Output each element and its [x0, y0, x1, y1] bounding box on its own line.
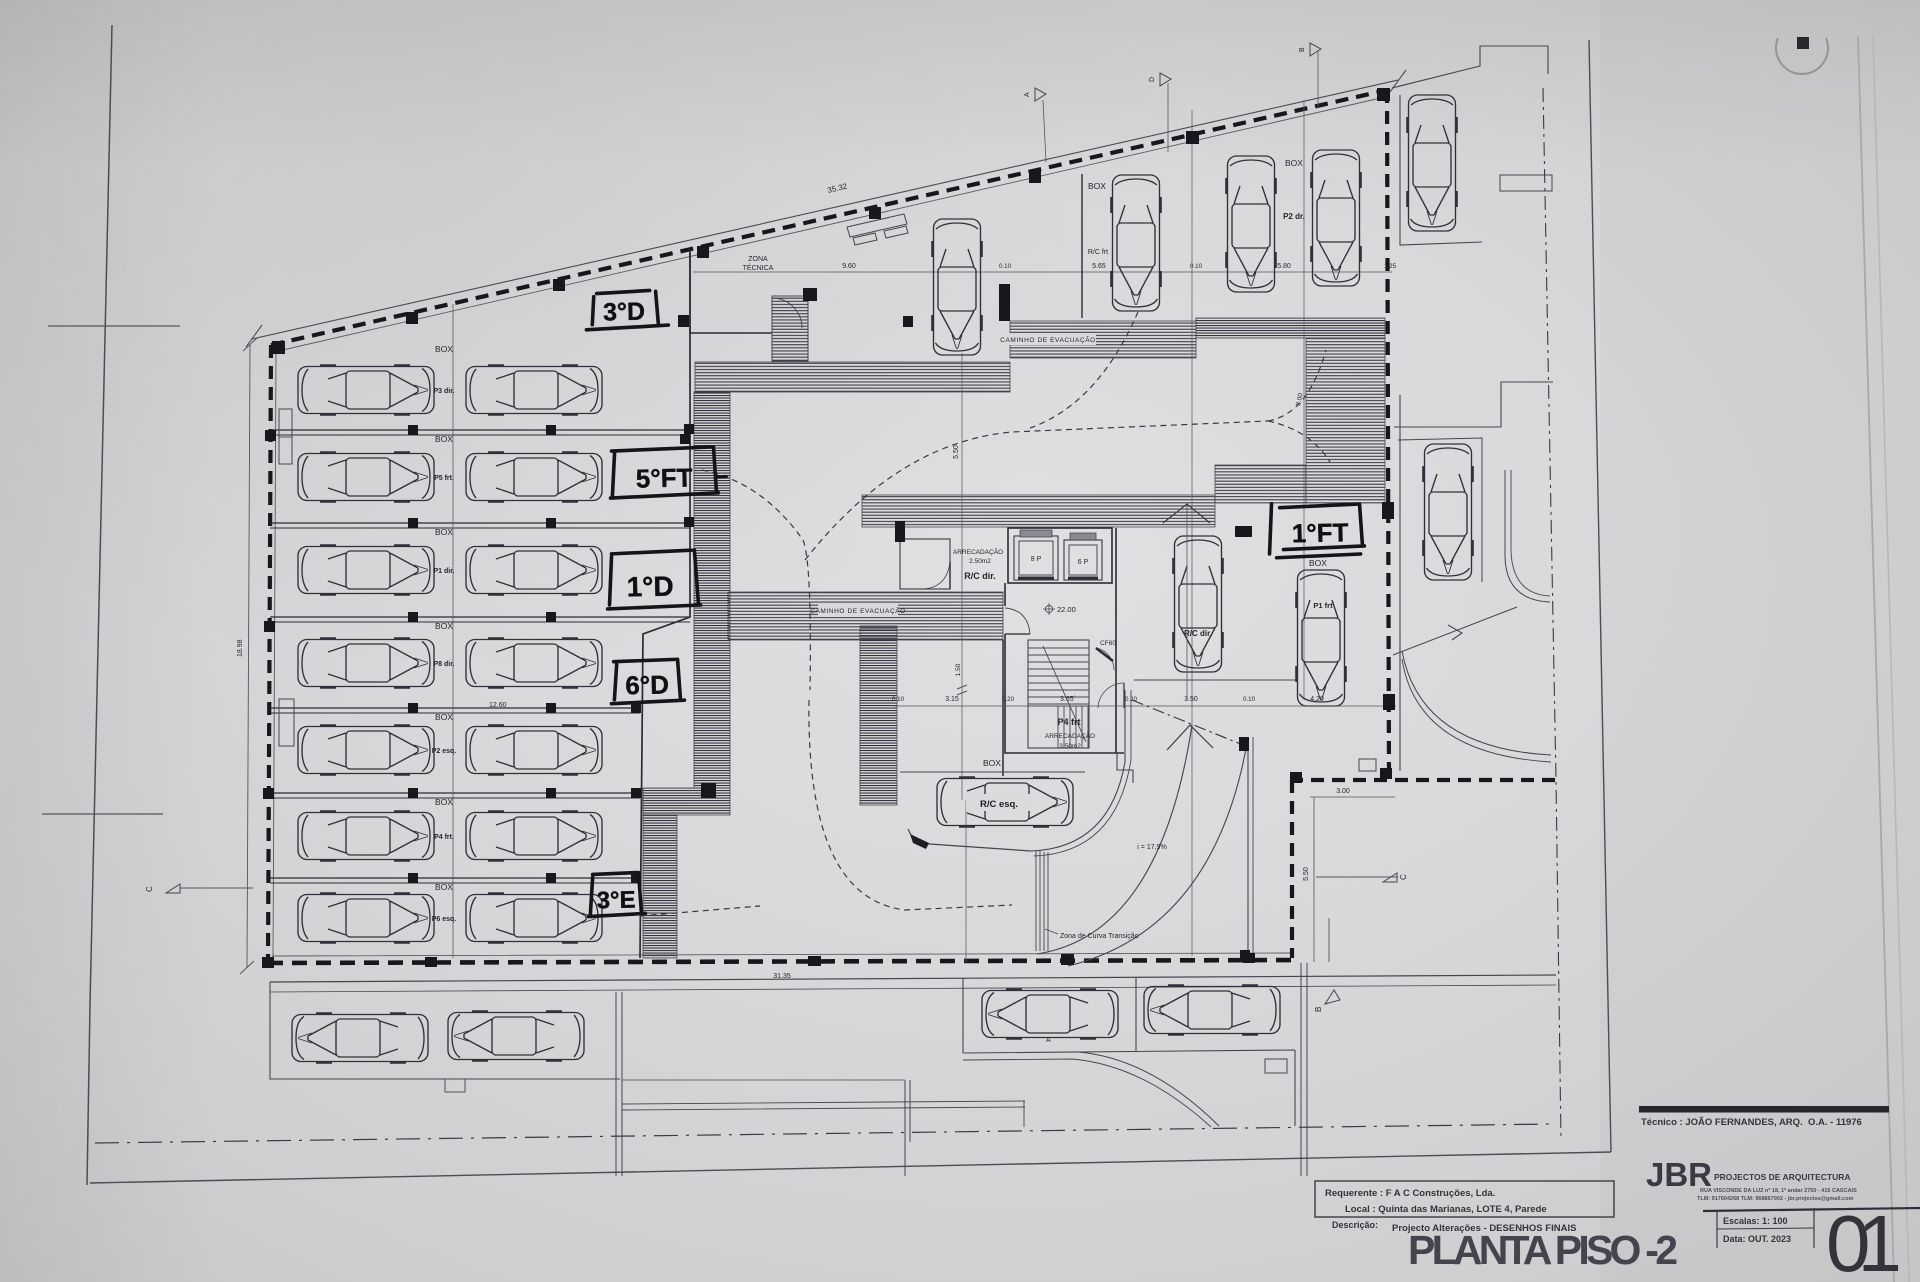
svg-text:Local : Quinta das Marianas, L: Local : Quinta das Marianas, LOTE 4, Par… [1345, 1204, 1547, 1215]
svg-text:B: B [1314, 1007, 1323, 1012]
svg-text:TÉCNICA: TÉCNICA [743, 263, 774, 272]
svg-text:RUA VISCONDE DA LUZ nº 18, 1º: RUA VISCONDE DA LUZ nº 18, 1º andar 2750… [1700, 1188, 1857, 1194]
svg-text:BOX: BOX [435, 527, 453, 537]
svg-text:P4 frt: P4 frt [1057, 717, 1080, 727]
svg-text:2.50m2: 2.50m2 [969, 558, 991, 565]
svg-text:P2 esq.: P2 esq. [432, 748, 457, 755]
svg-text:3.50m2: 3.50m2 [1059, 743, 1081, 750]
svg-text:BOX: BOX [983, 758, 1001, 768]
svg-text:CF60: CF60 [1100, 640, 1116, 647]
svg-text:BOX: BOX [435, 344, 453, 354]
svg-text:R/C esq.: R/C esq. [980, 799, 1018, 810]
svg-text:3°D: 3°D [603, 298, 646, 327]
svg-text:BOX: BOX [435, 712, 453, 722]
svg-text:C: C [1399, 874, 1408, 880]
svg-text:P8 dir.: P8 dir. [433, 661, 454, 668]
svg-text:PLANTA PISO -2: PLANTA PISO -2 [1408, 1227, 1678, 1273]
svg-text:A: A [1024, 92, 1031, 97]
svg-text:P5 frt.: P5 frt. [434, 475, 454, 482]
svg-text:1.25: 1.25 [1384, 263, 1397, 270]
svg-text:BOX: BOX [1088, 181, 1106, 191]
svg-text:Técnico : JOÃO FERNANDES, ARQ.: Técnico : JOÃO FERNANDES, ARQ. O.A. - 11… [1641, 1117, 1862, 1128]
svg-text:P1 dir.: P1 dir. [433, 568, 454, 575]
svg-text:9.60: 9.60 [842, 263, 856, 270]
svg-text:CAMINHO DE EVACUAÇÃO: CAMINHO DE EVACUAÇÃO [810, 606, 906, 615]
svg-text:3.00: 3.00 [1336, 788, 1350, 795]
svg-text:Zona de Curva Transição: Zona de Curva Transição [1060, 933, 1139, 940]
svg-text:Data: OUT. 2023: Data: OUT. 2023 [1723, 1234, 1791, 1244]
svg-text:ARRECADAÇÃO: ARRECADAÇÃO [953, 547, 1003, 556]
svg-text:5.50: 5.50 [1303, 867, 1310, 881]
svg-text:BOX: BOX [1309, 558, 1327, 568]
svg-text:18.98: 18.98 [237, 639, 244, 657]
svg-text:R/C dir.: R/C dir. [964, 571, 996, 581]
svg-text:8 P: 8 P [1031, 556, 1042, 563]
svg-text:BOX: BOX [435, 434, 453, 444]
svg-text:31.35: 31.35 [773, 973, 791, 980]
svg-text:0.10: 0.10 [999, 263, 1012, 270]
svg-text:Escalas: 1: 100: Escalas: 1: 100 [1723, 1216, 1788, 1226]
svg-text:P4 frt.: P4 frt. [434, 834, 454, 841]
svg-text:0.10: 0.10 [1243, 696, 1256, 703]
svg-text:P1 frt: P1 frt [1313, 601, 1333, 610]
svg-text:Requerente : F A C Construçõe: Requerente : F A C Construções, Lda. [1325, 1188, 1495, 1199]
svg-text:12.60: 12.60 [489, 702, 507, 709]
svg-text:R/C frt: R/C frt [1088, 249, 1108, 256]
svg-text:01: 01 [1826, 1199, 1902, 1282]
svg-text:4.20: 4.20 [1310, 696, 1324, 703]
svg-text:3.65´: 3.65´ [1060, 696, 1076, 703]
svg-text:BOX: BOX [435, 797, 453, 807]
svg-text:P3 dir.: P3 dir. [433, 388, 454, 395]
svg-text:Descrição:: Descrição: [1332, 1220, 1378, 1230]
svg-text:5°FT: 5°FT [635, 462, 692, 493]
svg-text:BOX: BOX [435, 882, 453, 892]
svg-text:A: A [1046, 1037, 1051, 1044]
svg-text:1.50: 1.50 [955, 663, 962, 676]
svg-text:i = 17,9%: i = 17,9% [1137, 844, 1166, 851]
svg-text:CAMINHO DE EVACUAÇÃO: CAMINHO DE EVACUAÇÃO [1000, 335, 1096, 344]
svg-text:C: C [145, 886, 154, 892]
svg-text:3.50: 3.50 [1184, 696, 1198, 703]
svg-text:BOX: BOX [435, 621, 453, 631]
svg-text:ARRECADAÇÃO: ARRECADAÇÃO [1045, 731, 1095, 740]
svg-text:BOX: BOX [1285, 158, 1303, 168]
svg-text:ZONA: ZONA [748, 256, 768, 263]
svg-text:1°FT: 1°FT [1292, 517, 1349, 548]
svg-text:D: D [1149, 77, 1156, 82]
svg-text:5.65: 5.65 [1092, 263, 1106, 270]
svg-text:P2 dr.: P2 dr. [1283, 212, 1305, 221]
svg-text:6°D: 6°D [625, 670, 669, 701]
svg-text:5.50: 5.50 [953, 445, 960, 459]
svg-text:B: B [1299, 47, 1306, 52]
svg-text:PROJECTOS DE ARQUITECTURA: PROJECTOS DE ARQUITECTURA [1714, 1172, 1851, 1182]
svg-text:6 P: 6 P [1078, 559, 1089, 566]
svg-text:3.15: 3.15 [945, 696, 959, 703]
svg-text:R/C dir.: R/C dir. [1184, 629, 1212, 638]
svg-text:22.00: 22.00 [1057, 605, 1076, 614]
svg-text:1°D: 1°D [626, 571, 674, 603]
svg-text:5.80: 5.80 [1277, 263, 1291, 270]
svg-text:P6 esq.: P6 esq. [432, 916, 457, 923]
svg-text:3°E: 3°E [596, 887, 636, 915]
svg-text:0.10: 0.10 [892, 696, 905, 703]
svg-text:0.20: 0.20 [1002, 696, 1015, 703]
